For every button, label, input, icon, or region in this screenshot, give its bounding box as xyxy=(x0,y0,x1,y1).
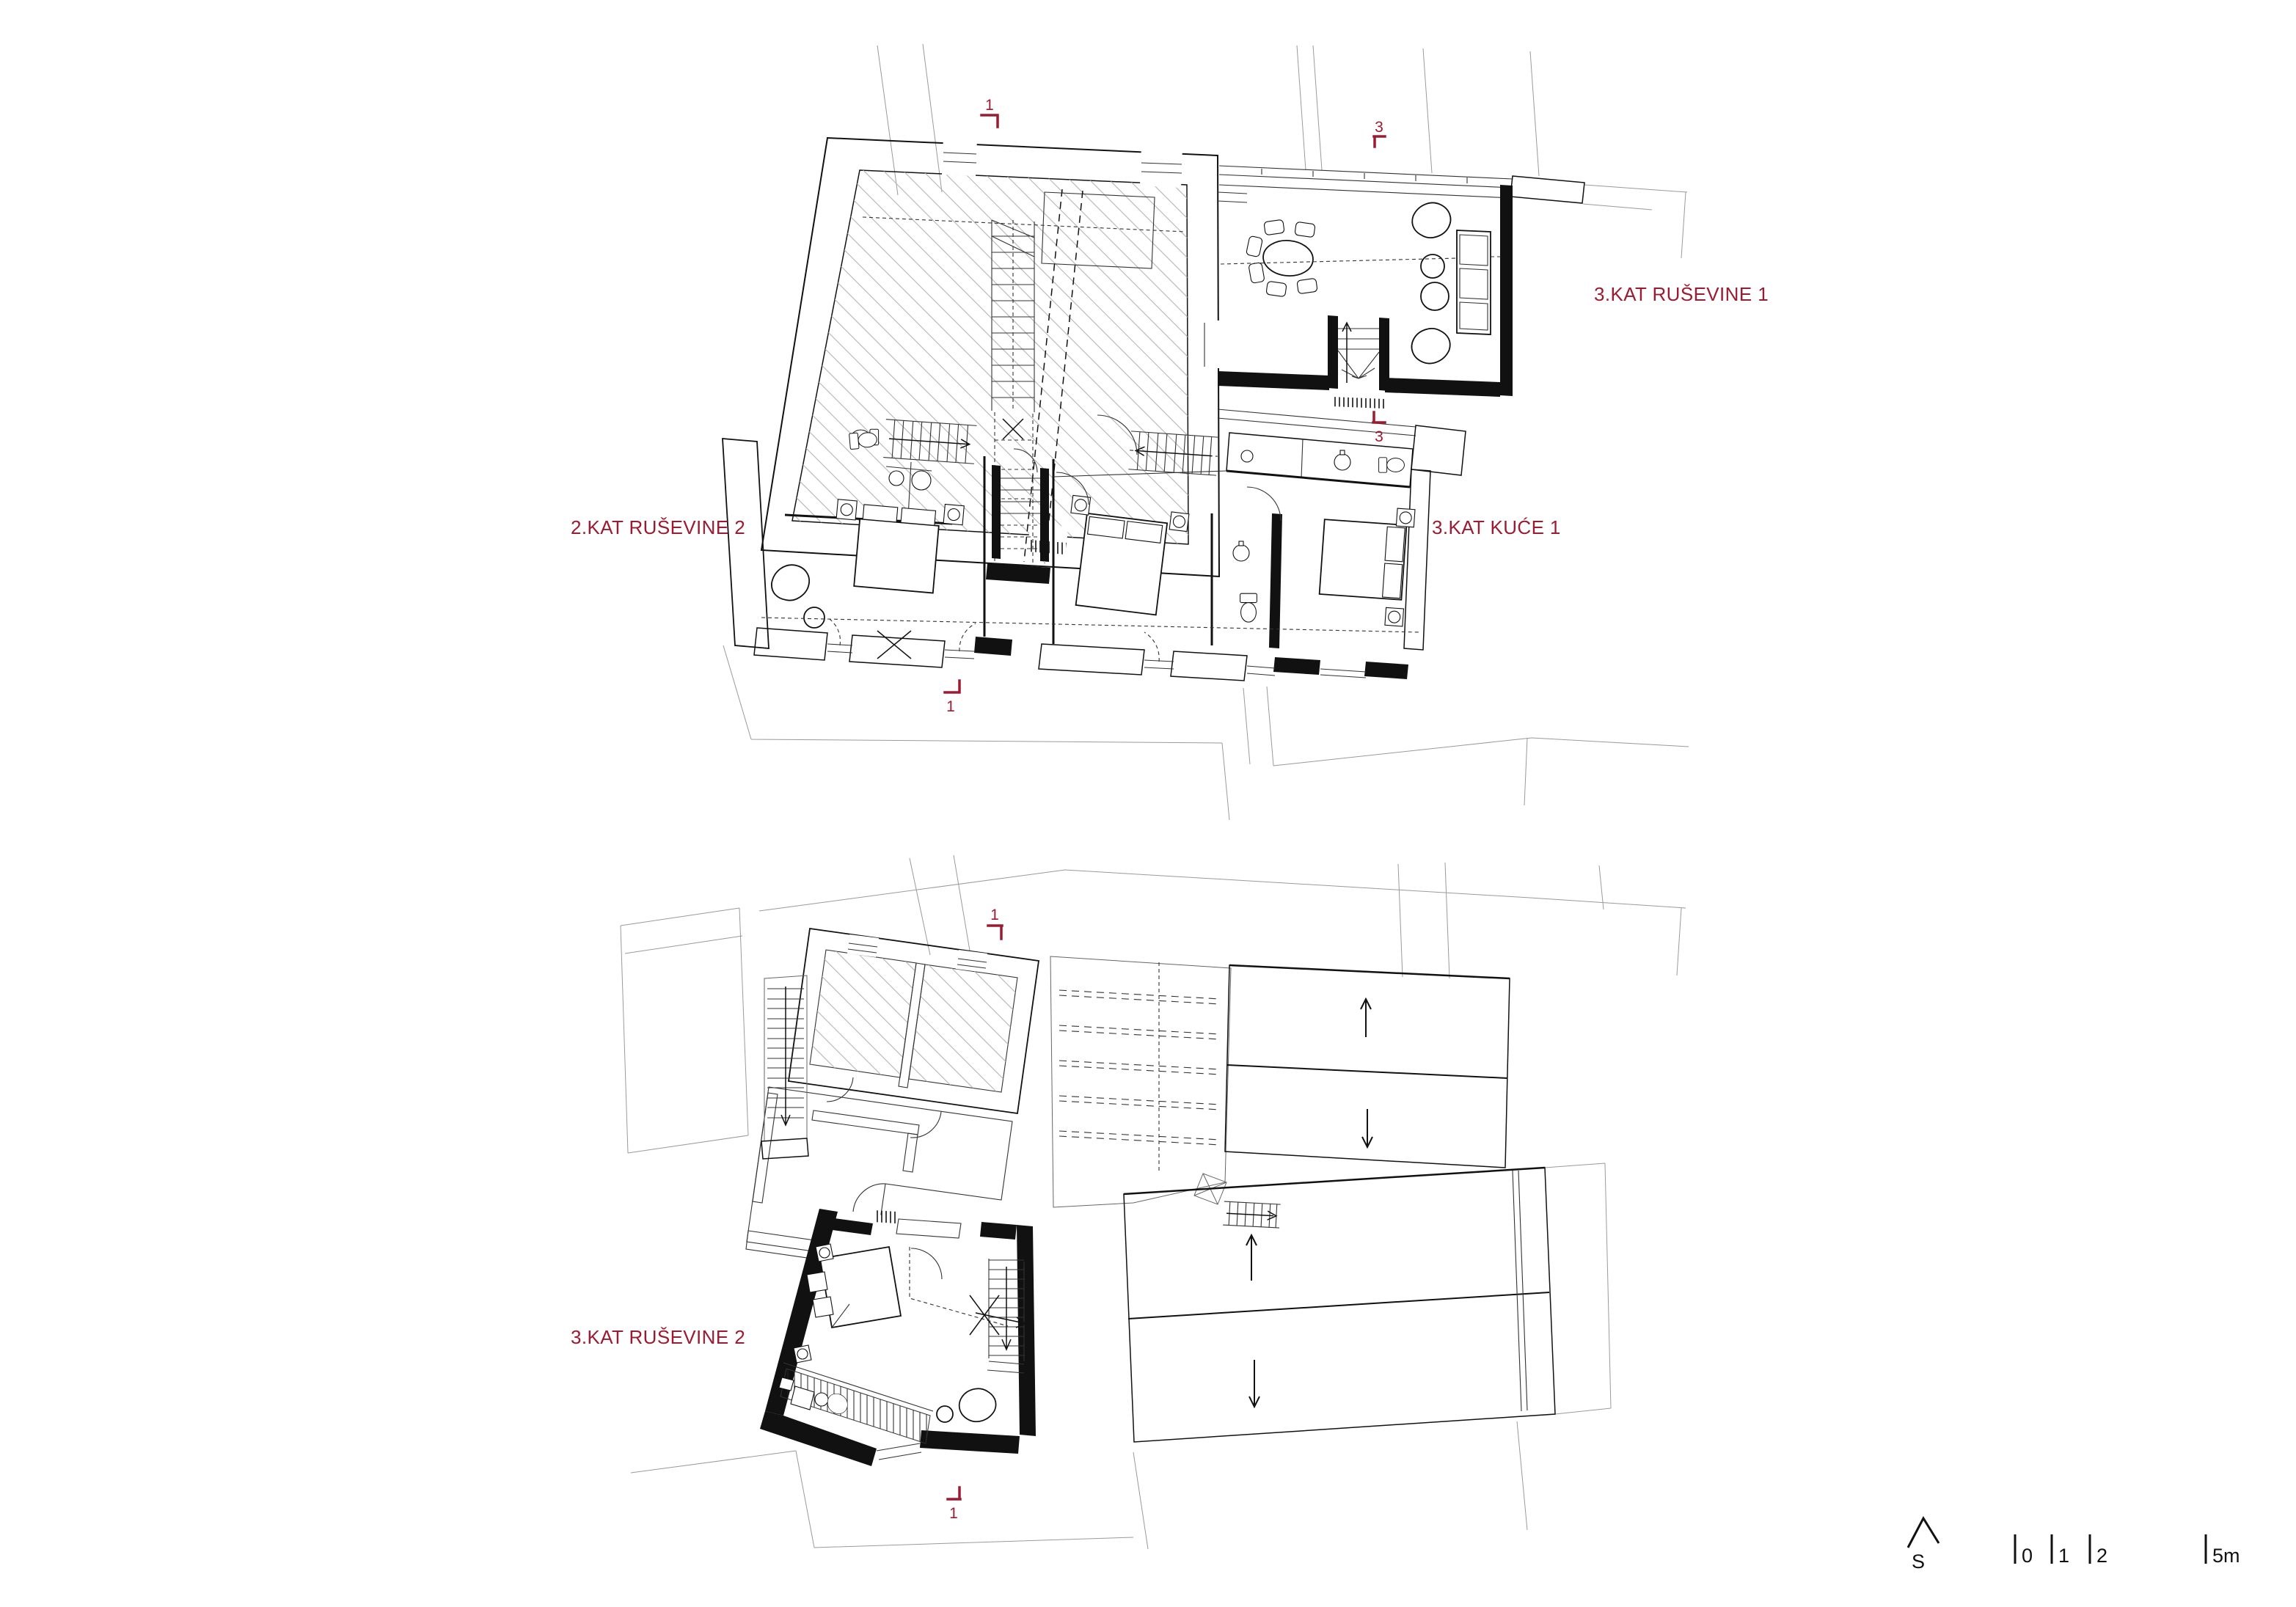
label-3kat-rusevine-1: 3.KAT RUŠEVINE 1 xyxy=(1594,283,1769,305)
label-2kat-rusevine-2: 2.KAT RUŠEVINE 2 xyxy=(571,516,745,538)
section-marker-3-bottom: 3 xyxy=(1375,428,1383,445)
section-marker-1-top: 1 xyxy=(990,907,999,923)
drawing-sheet: 1 1 3 3 2.KAT RUŠEVINE 2 3.KAT RUŠEVINE … xyxy=(0,0,2296,1607)
scale-tick-1: 1 xyxy=(2058,1545,2069,1567)
section-marker-1-bottom: 1 xyxy=(946,698,955,715)
label-3kat-rusevine-2: 3.KAT RUŠEVINE 2 xyxy=(571,1326,745,1348)
north-label: S xyxy=(1912,1551,1925,1573)
section-marker-1-top: 1 xyxy=(985,97,994,114)
label-3kat-kuce-1: 3.KAT KUĆE 1 xyxy=(1432,516,1561,538)
scale-tick-2: 2 xyxy=(2096,1545,2107,1567)
wc-mid-bath xyxy=(1240,593,1257,622)
section-marker-1-bottom: 1 xyxy=(949,1505,958,1522)
floor-plan-drawing: 1 1 3 3 2.KAT RUŠEVINE 2 3.KAT RUŠEVINE … xyxy=(0,0,2296,1607)
section-marker-3-top: 3 xyxy=(1375,119,1383,136)
scale-tick-5m: 5m xyxy=(2212,1545,2240,1567)
scale-tick-0: 0 xyxy=(2022,1545,2033,1567)
